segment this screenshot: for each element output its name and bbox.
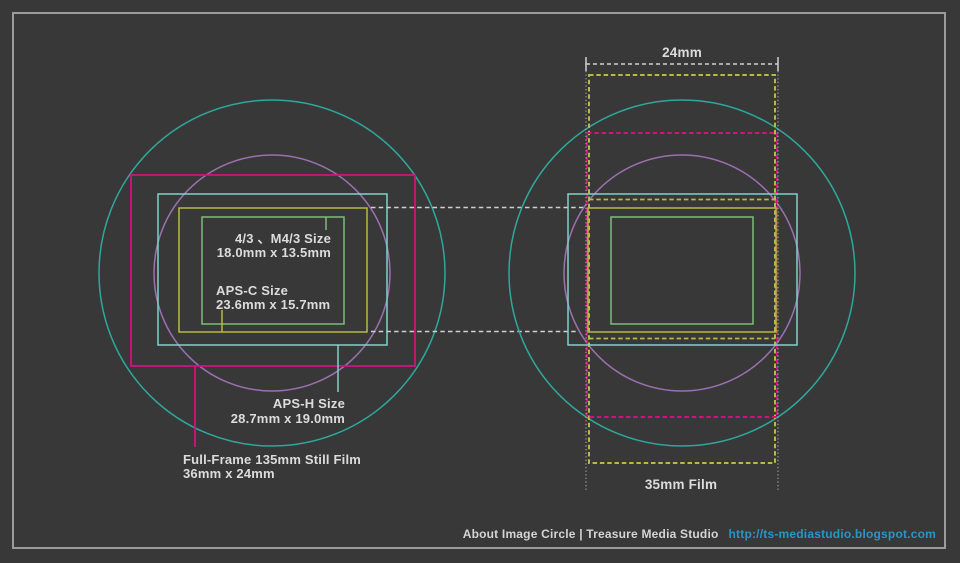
- aps-c-size-label: 23.6mm x 15.7mm: [216, 297, 330, 312]
- aps-c-rect-right: [588, 208, 776, 332]
- aps-c-rect: [179, 208, 367, 332]
- footer-text: About Image Circle | Treasure Media Stud…: [463, 527, 719, 541]
- left-image-circle: [99, 100, 445, 446]
- image-circle-diagram: 4/3 、M4/3 Size 18.0mm x 13.5mm APS-C Siz…: [0, 0, 960, 563]
- aps-h-label: APS-H Size: [273, 396, 345, 411]
- four-thirds-label: 4/3 、M4/3 Size: [235, 231, 331, 246]
- frame-border: [13, 13, 945, 548]
- footer-url-link[interactable]: http://ts-mediastudio.blogspot.com: [729, 527, 936, 541]
- right-inner-image-circle: [564, 155, 800, 391]
- left-inner-image-circle: [154, 155, 390, 391]
- aps-h-size-label: 28.7mm x 19.0mm: [231, 411, 345, 426]
- footer-caption: About Image Circle | Treasure Media Stud…: [463, 527, 936, 541]
- right-image-circle: [509, 100, 855, 446]
- diagram-canvas: 4/3 、M4/3 Size 18.0mm x 13.5mm APS-C Siz…: [0, 0, 960, 563]
- film-name-label: 35mm Film: [645, 477, 717, 492]
- film-width-label: 24mm: [662, 45, 702, 60]
- aps-c-label: APS-C Size: [216, 283, 288, 298]
- four-thirds-rect-right: [611, 217, 753, 324]
- four-thirds-size-label: 18.0mm x 13.5mm: [217, 245, 331, 260]
- full-frame-size-label: 36mm x 24mm: [183, 466, 275, 481]
- full-frame-label: Full-Frame 135mm Still Film: [183, 452, 361, 467]
